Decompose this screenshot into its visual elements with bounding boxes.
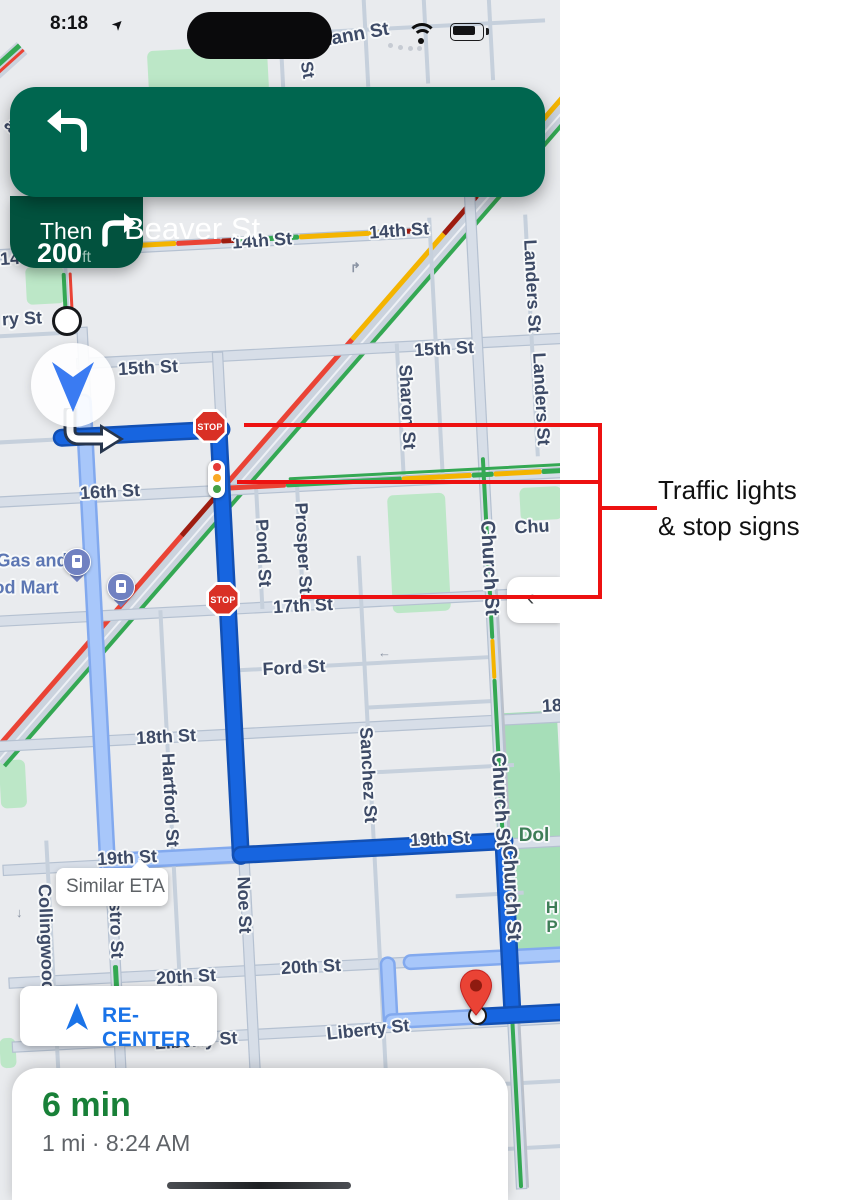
one-way-arrow-icon: ↓ xyxy=(16,905,23,920)
turn-left-icon xyxy=(40,101,92,153)
navigation-banner[interactable]: 200ft Beaver St xyxy=(10,87,545,197)
annotation-red-line xyxy=(598,423,602,599)
similar-eta-label: Similar ETA xyxy=(66,876,165,898)
screenshot-stage: mann StStastro1414th St14th Stry St15th … xyxy=(0,0,850,1200)
annotation-line2: & stop signs xyxy=(658,508,800,544)
status-bar: 8:18 ➤ xyxy=(0,0,560,62)
one-way-arrow-icon: ↱ xyxy=(350,260,361,276)
similar-eta-bubble[interactable]: Similar ETA xyxy=(56,868,168,906)
traffic-light-icon xyxy=(208,460,225,498)
collapse-panel-chip[interactable]: ‹ xyxy=(507,577,560,623)
home-indicator[interactable] xyxy=(167,1182,351,1189)
battery-icon xyxy=(450,23,484,41)
location-services-icon: ➤ xyxy=(108,14,128,34)
stop-sign-icon: STOP xyxy=(206,582,240,616)
gas-pump-window xyxy=(75,558,80,562)
eta-bottom-sheet[interactable]: 6 min 1 mi · 8:24 AM xyxy=(12,1068,508,1200)
recenter-button[interactable]: RE-CENTER xyxy=(20,986,217,1046)
annotation-line1: Traffic lights xyxy=(658,472,800,508)
destination-pin-icon xyxy=(459,969,493,1017)
wifi-icon xyxy=(406,22,438,46)
navigation-triangle-icon xyxy=(66,1003,88,1030)
phone-notch xyxy=(187,12,332,59)
eta-details: 1 mi · 8:24 AM xyxy=(42,1130,190,1157)
gas-pump-window xyxy=(119,583,124,587)
clock-time: 8:18 xyxy=(50,13,88,35)
stop-sign-text: STOP xyxy=(206,595,240,605)
gas-station-pin-icon[interactable] xyxy=(107,573,135,611)
chevron-left-icon: ‹ xyxy=(527,585,534,611)
maneuver-point-dot xyxy=(52,306,82,336)
gas-station-pin-icon[interactable] xyxy=(63,548,91,586)
maneuver-street-name: Beaver St xyxy=(124,211,260,247)
stop-sign-text: STOP xyxy=(193,422,227,432)
annotation-text: Traffic lights & stop signs xyxy=(658,472,800,544)
eta-duration: 6 min xyxy=(42,1086,131,1125)
annotation-red-line xyxy=(598,506,657,510)
one-way-arrow-icon: ← xyxy=(378,645,391,660)
maneuver-distance: 200ft xyxy=(37,238,91,269)
recenter-label: RE-CENTER xyxy=(102,1004,217,1052)
stop-sign-icon: STOP xyxy=(193,409,227,443)
maps-app-screen[interactable]: mann StStastro1414th St14th Stry St15th … xyxy=(0,0,560,1200)
